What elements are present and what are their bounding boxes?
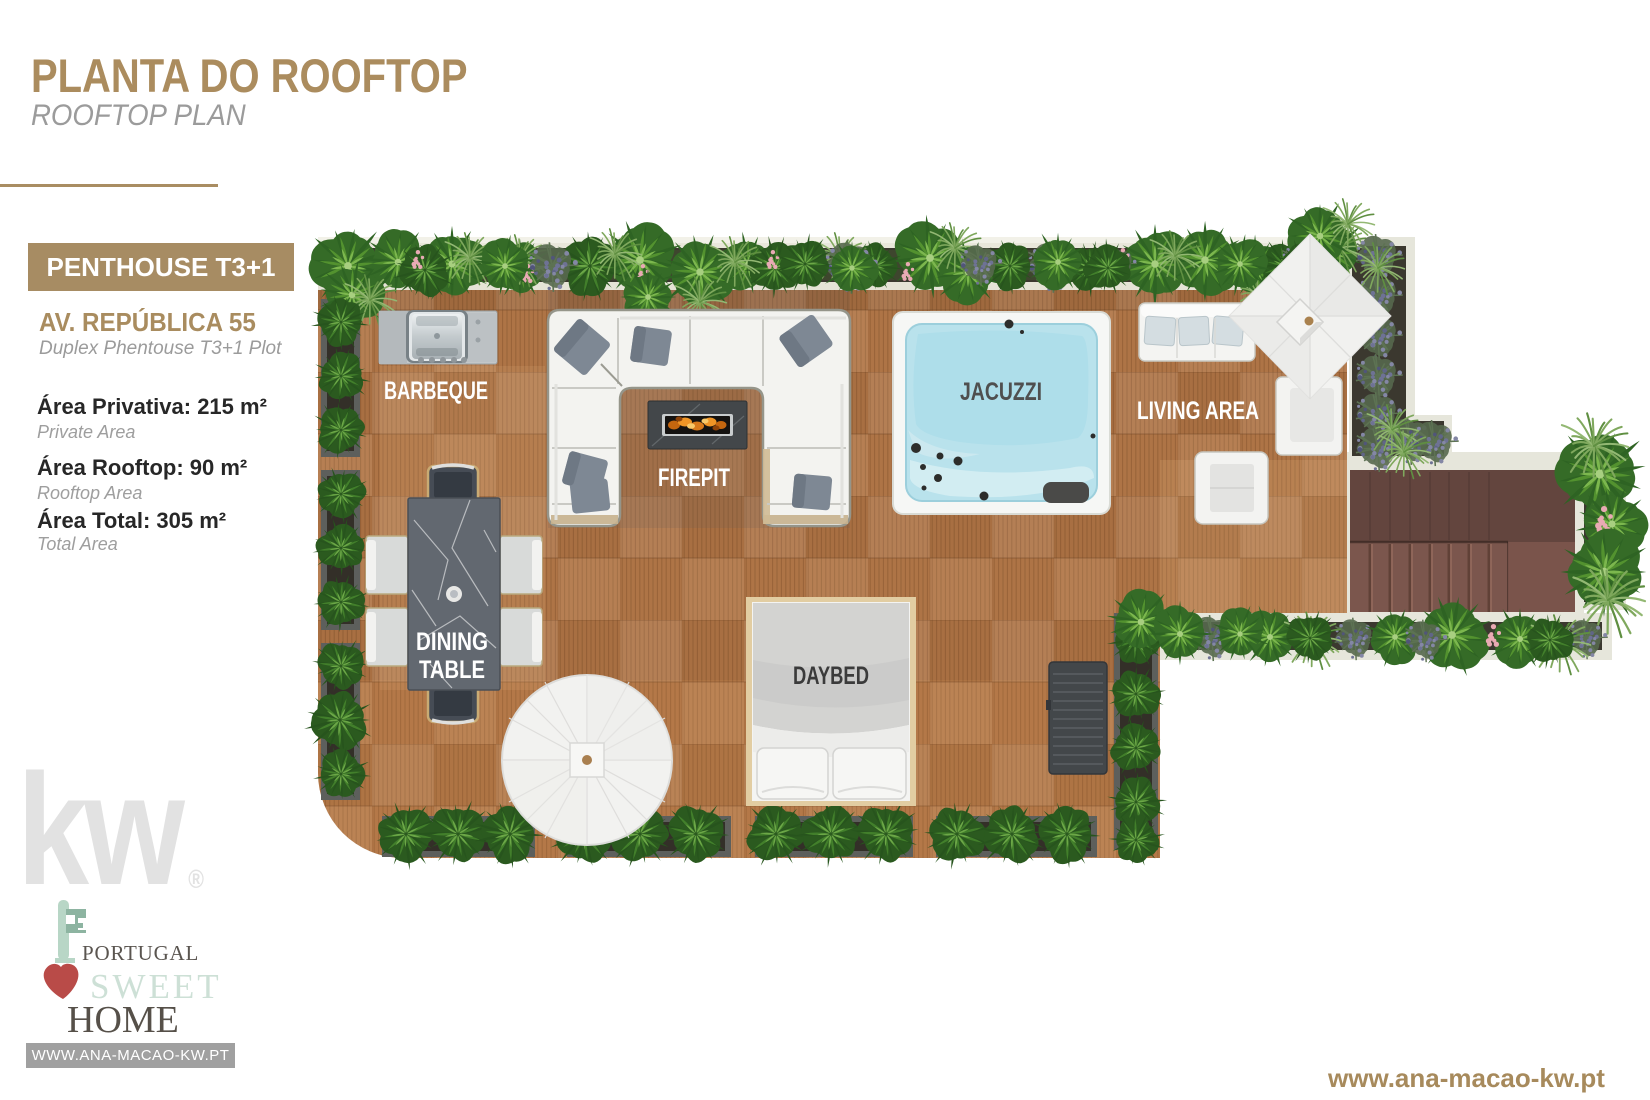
svg-text:TABLE: TABLE	[419, 656, 485, 684]
svg-text:LIVING AREA: LIVING AREA	[1137, 397, 1259, 425]
svg-text:DINING: DINING	[416, 628, 488, 656]
svg-text:FIREPIT: FIREPIT	[658, 464, 730, 492]
svg-text:JACUZZI: JACUZZI	[960, 378, 1042, 406]
svg-text:BARBEQUE: BARBEQUE	[384, 377, 488, 405]
svg-text:DAYBED: DAYBED	[793, 662, 869, 690]
